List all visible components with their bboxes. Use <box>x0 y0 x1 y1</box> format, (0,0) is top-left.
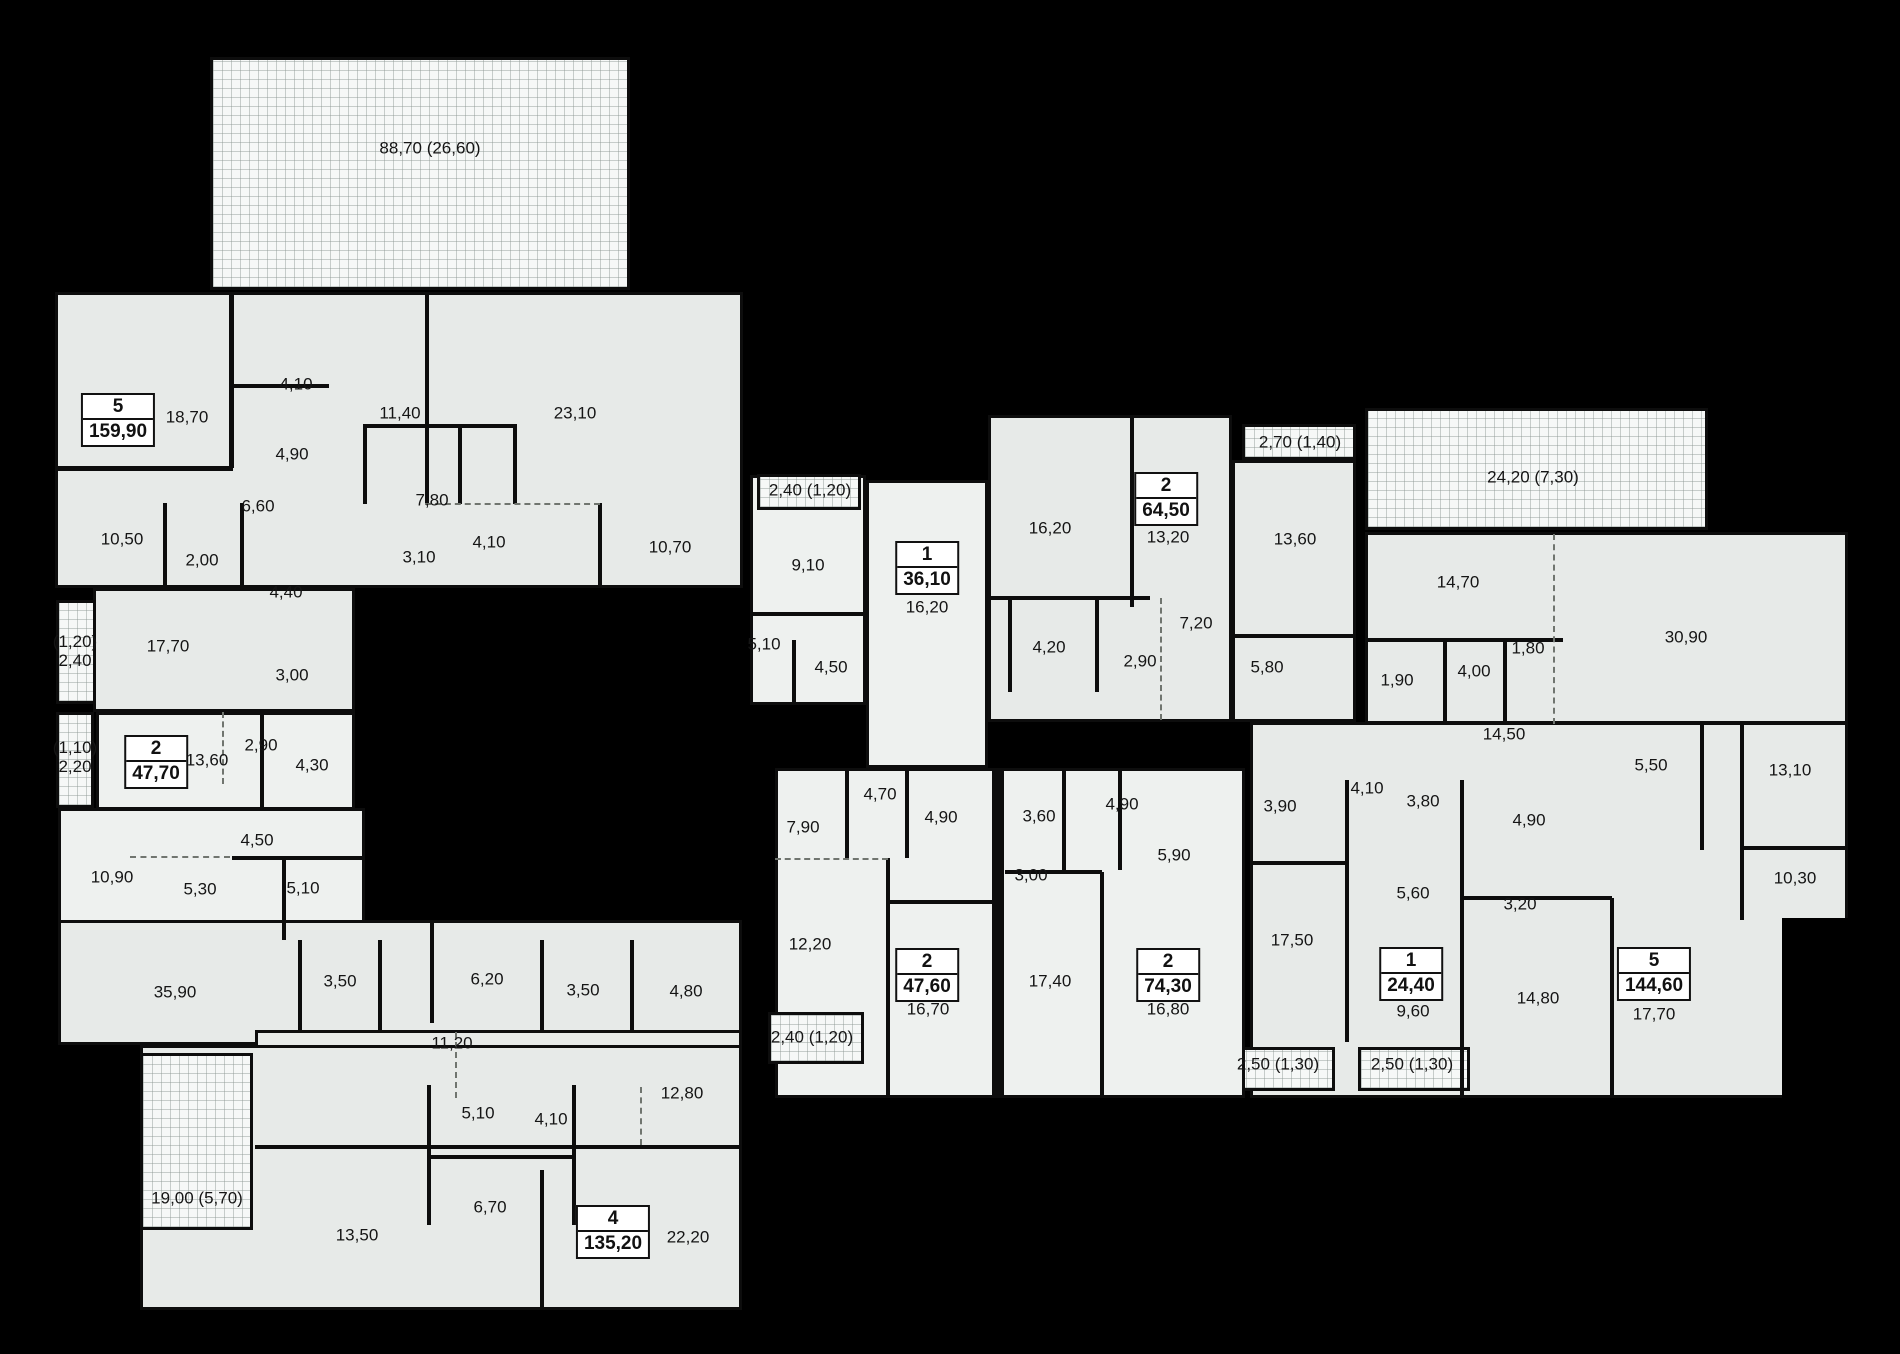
wall-segment <box>1503 638 1507 724</box>
apartment-rooms-count: 2 <box>1136 474 1196 499</box>
wall-segment <box>1740 722 1744 920</box>
room-area-label: 16,20 <box>906 597 949 616</box>
room-area-label: 12,80 <box>661 1083 704 1102</box>
wall-segment <box>430 923 434 1023</box>
room-area-label: 4,70 <box>863 784 896 803</box>
room-area-label: 4,90 <box>1105 794 1138 813</box>
room-area-label: 3,90 <box>1263 796 1296 815</box>
room-area-label: 7,90 <box>786 817 819 836</box>
apartment-badge: 136,10 <box>895 541 959 595</box>
apartment-total-area: 24,40 <box>1381 974 1441 999</box>
room-area-label: 16,20 <box>1029 518 1072 537</box>
apartment-badge: 247,70 <box>124 735 188 789</box>
wall-segment <box>55 466 233 471</box>
room-area-label: 5,90 <box>1157 845 1190 864</box>
wall-segment <box>1250 861 1349 865</box>
room-area-label: 11,20 <box>431 1033 472 1052</box>
wall-segment <box>988 596 1150 600</box>
apartment-badge: 247,60 <box>895 948 959 1002</box>
wall-segment <box>232 856 362 860</box>
room-area-label: 3,80 <box>1406 791 1439 810</box>
room-area-label: 35,90 <box>154 982 197 1001</box>
room-area-label: 9,10 <box>791 555 824 574</box>
wall-segment <box>540 940 544 1030</box>
room-area-label: 1,90 <box>1380 670 1413 689</box>
room-area-label: 2,90 <box>244 735 277 754</box>
wall-segment <box>1095 596 1099 692</box>
apartment-rooms-count: 4 <box>578 1207 648 1232</box>
room-area-label: 4,20 <box>1032 637 1065 656</box>
wall-segment <box>1740 846 1848 850</box>
room-area-label: 11,40 <box>379 403 420 422</box>
wall-segment <box>1345 780 1349 1042</box>
room-area-label: 3,60 <box>1022 806 1055 825</box>
room-area-label: 17,70 <box>1633 1004 1676 1023</box>
room-area-label: 17,50 <box>1271 930 1314 949</box>
wall-segment <box>378 940 382 1030</box>
room-area-label: 5,10 <box>286 878 319 897</box>
apartment-rooms-count: 1 <box>897 543 957 568</box>
room-area-label: 13,50 <box>336 1225 379 1244</box>
wall-segment <box>255 1145 742 1149</box>
wall-segment <box>540 1170 544 1310</box>
wall-segment <box>792 640 796 705</box>
room-area-label: 10,90 <box>91 867 134 886</box>
apartment-rooms-count: 2 <box>1138 950 1198 975</box>
room-area-label: 5,50 <box>1634 755 1667 774</box>
dashed-partition-line <box>222 712 224 784</box>
room-area-label: 13,10 <box>1769 760 1812 779</box>
wall-segment <box>229 292 234 468</box>
room-area-label: 14,70 <box>1437 572 1480 591</box>
room-area-label: 4,90 <box>1512 810 1545 829</box>
apartment-total-area: 74,30 <box>1138 975 1198 1000</box>
room-area-label: 88,70 (26,60) <box>379 138 480 157</box>
room-area-label: 3,00 <box>1014 865 1047 884</box>
apartment-rooms-count: 5 <box>83 395 153 420</box>
apartment-badge: 5144,60 <box>1617 947 1691 1001</box>
room-area-label: 7,20 <box>1179 613 1212 632</box>
room-area-label: 6,60 <box>241 496 274 515</box>
wall-segment <box>1100 872 1104 1098</box>
room-area-label: 4,50 <box>240 830 273 849</box>
wall-segment <box>298 940 302 1030</box>
room-area-label: 2,00 <box>185 550 218 569</box>
room-block <box>866 480 988 768</box>
room-area-label: 16,80 <box>1147 999 1190 1018</box>
room-area-label: 4,10 <box>472 532 505 551</box>
room-area-label: 2,50 (1,30) <box>1237 1054 1319 1073</box>
room-area-label: 4,00 <box>1457 661 1490 680</box>
room-area-label: 14,50 <box>1483 724 1526 743</box>
dashed-partition-line <box>1160 598 1162 720</box>
wall-segment <box>1118 768 1122 870</box>
dashed-partition-line <box>425 503 600 505</box>
apartment-rooms-count: 5 <box>1619 949 1689 974</box>
apartment-total-area: 144,60 <box>1619 974 1689 999</box>
apartment-total-area: 159,90 <box>83 420 153 445</box>
dashed-partition-line <box>1553 534 1555 724</box>
room-area-label: 7,80 <box>415 490 448 509</box>
apartment-badge: 5159,90 <box>81 393 155 447</box>
room-area-label: 10,70 <box>649 537 692 556</box>
wall-segment <box>427 1155 576 1159</box>
room-area-label: 9,60 <box>1396 1001 1429 1020</box>
wall-segment <box>1443 638 1447 724</box>
room-area-label: 14,80 <box>1517 988 1560 1007</box>
apartment-total-area: 36,10 <box>897 568 957 593</box>
room-block <box>1365 532 1848 724</box>
wall-segment <box>163 503 167 588</box>
room-area-label: 5,30 <box>183 879 216 898</box>
room-area-label: 3,20 <box>1503 894 1536 913</box>
wall-segment <box>240 503 244 588</box>
room-area-label: 19,00 (5,70) <box>151 1188 243 1207</box>
apartment-total-area: 64,50 <box>1136 499 1196 524</box>
wall-segment <box>282 856 286 940</box>
wall-segment <box>1062 768 1066 870</box>
wall-segment <box>598 503 602 588</box>
room-block <box>988 415 1232 722</box>
wall-segment <box>630 940 634 1030</box>
wall-segment <box>425 292 429 505</box>
room-area-label: 4,80 <box>669 981 702 1000</box>
room-area-label: 5,60 <box>1396 883 1429 902</box>
wall-segment <box>905 768 909 858</box>
dashed-partition-line <box>130 856 230 858</box>
wall-segment <box>458 424 462 504</box>
room-area-label: 2,70 (1,40) <box>1259 432 1341 451</box>
apartment-total-area: 47,70 <box>126 762 186 787</box>
wall-segment <box>1008 596 1012 692</box>
room-block <box>1232 460 1356 722</box>
wall-segment <box>992 768 1004 1098</box>
room-area-label: 5,80 <box>1250 657 1283 676</box>
room-area-label: 5,10 <box>461 1103 494 1122</box>
void-notch <box>1782 918 1848 1098</box>
wall-segment <box>845 768 849 858</box>
room-area-label: 6,70 <box>473 1197 506 1216</box>
wall-segment <box>363 424 367 504</box>
wall-segment <box>363 424 515 428</box>
room-area-label: 3,50 <box>323 971 356 990</box>
room-area-label: 16,70 <box>907 999 950 1018</box>
room-area-label: 17,40 <box>1029 971 1072 990</box>
room-area-label: 12,20 <box>789 934 832 953</box>
room-area-label: 13,20 <box>1147 527 1190 546</box>
wall-segment <box>1610 898 1614 1098</box>
wall-segment <box>1232 634 1356 638</box>
room-area-label: 18,70 <box>166 407 209 426</box>
room-area-label: (1,10) 2,20 <box>53 738 97 776</box>
room-area-label: 2,50 (1,30) <box>1371 1054 1453 1073</box>
room-area-label: 4,90 <box>924 807 957 826</box>
dashed-partition-line <box>640 1087 642 1145</box>
room-area-label: (1,20) 2,40 <box>53 632 97 670</box>
apartment-badge: 274,30 <box>1136 948 1200 1002</box>
room-area-label: 13,60 <box>186 750 229 769</box>
apartment-total-area: 135,20 <box>578 1232 648 1257</box>
wall-segment <box>750 612 866 616</box>
room-area-label: 3,50 <box>566 980 599 999</box>
room-area-label: 30,90 <box>1665 627 1708 646</box>
room-area-label: 4,40 <box>269 582 302 601</box>
room-area-label: 24,20 (7,30) <box>1487 467 1579 486</box>
room-area-label: 4,90 <box>275 444 308 463</box>
apartment-total-area: 47,60 <box>897 975 957 1000</box>
room-area-label: 4,10 <box>534 1109 567 1128</box>
apartment-badge: 124,40 <box>1379 947 1443 1001</box>
room-area-label: 22,20 <box>667 1227 710 1246</box>
room-area-label: 3,00 <box>275 665 308 684</box>
apartment-rooms-count: 1 <box>1381 949 1441 974</box>
room-area-label: 13,60 <box>1274 529 1317 548</box>
room-area-label: 4,10 <box>1350 778 1383 797</box>
floor-plan-canvas: 88,70 (26,60)18,704,1011,4023,104,906,60… <box>0 0 1900 1354</box>
room-area-label: 5,10 <box>747 634 780 653</box>
wall-segment <box>886 858 890 1098</box>
room-area-label: 23,10 <box>554 403 597 422</box>
room-area-label: 4,30 <box>295 755 328 774</box>
room-block <box>55 292 743 588</box>
wall-segment <box>260 712 264 810</box>
room-area-label: 6,20 <box>470 969 503 988</box>
room-area-label: 3,10 <box>402 547 435 566</box>
room-area-label: 10,30 <box>1774 868 1817 887</box>
dashed-partition-line <box>775 858 888 860</box>
room-area-label: 2,40 (1,20) <box>769 480 851 499</box>
apartment-rooms-count: 2 <box>897 950 957 975</box>
wall-segment <box>886 900 994 904</box>
wall-segment <box>513 424 517 504</box>
room-area-label: 4,50 <box>814 657 847 676</box>
room-block <box>93 588 355 712</box>
apartment-badge: 264,50 <box>1134 472 1198 526</box>
room-area-label: 4,10 <box>279 374 312 393</box>
wall-segment <box>1700 722 1704 850</box>
apartment-rooms-count: 2 <box>126 737 186 762</box>
room-block <box>1250 722 1848 1098</box>
room-area-label: 1,80 <box>1511 638 1544 657</box>
room-area-label: 2,40 (1,20) <box>771 1027 853 1046</box>
wall-segment <box>1460 780 1464 1098</box>
apartment-badge: 4135,20 <box>576 1205 650 1259</box>
room-area-label: 2,90 <box>1123 651 1156 670</box>
room-area-label: 10,50 <box>101 529 144 548</box>
balcony-hatch-area <box>210 57 630 290</box>
room-area-label: 17,70 <box>147 636 190 655</box>
